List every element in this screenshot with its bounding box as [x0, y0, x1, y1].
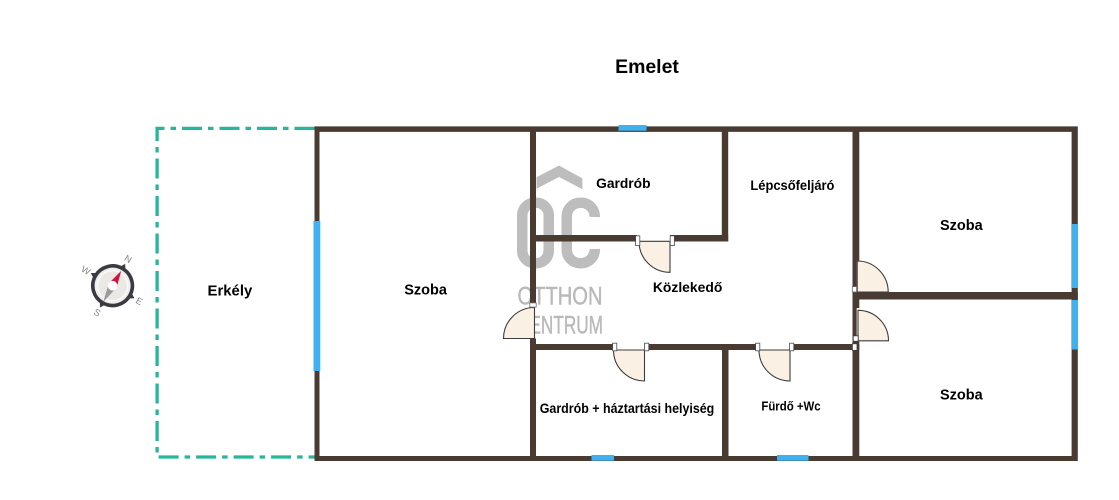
svg-text:Emelet: Emelet — [615, 56, 679, 78]
svg-text:W: W — [80, 264, 93, 277]
svg-text:Közlekedő: Közlekedő — [653, 280, 723, 296]
svg-text:S: S — [92, 307, 102, 319]
svg-text:Lépcsőfeljáró: Lépcsőfeljáró — [750, 178, 834, 194]
svg-text:Erkély: Erkély — [208, 283, 254, 299]
svg-text:Szoba: Szoba — [940, 387, 984, 403]
svg-text:E: E — [134, 295, 144, 307]
svg-text:Gardrób + háztartási helyiség: Gardrób + háztartási helyiség — [540, 401, 715, 416]
svg-text:Fürdő +Wc: Fürdő +Wc — [761, 398, 820, 413]
svg-text:N: N — [123, 253, 134, 265]
svg-text:Szoba: Szoba — [940, 218, 984, 234]
svg-text:Szoba: Szoba — [404, 282, 448, 298]
svg-text:Gardrób: Gardrób — [596, 176, 651, 192]
